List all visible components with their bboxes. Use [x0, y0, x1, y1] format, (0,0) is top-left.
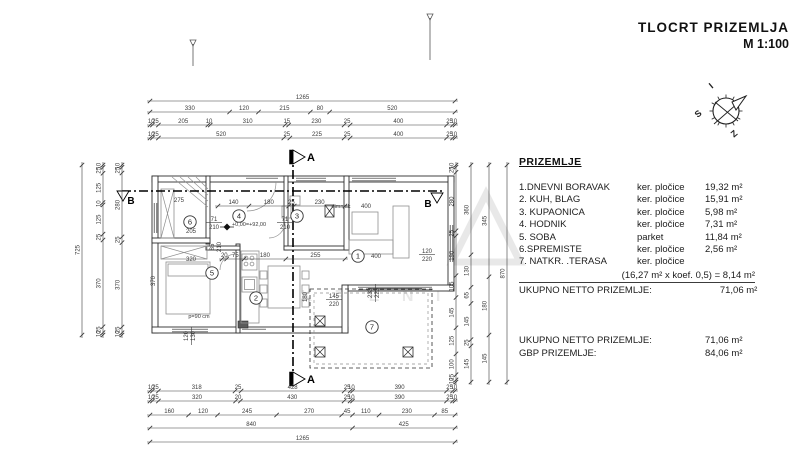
svg-text:270: 270 [304, 409, 315, 415]
room-name: 7. NATKR. .TERASA [519, 256, 637, 268]
svg-text:870: 870 [501, 268, 507, 279]
summary-row: GBP PRIZEMLJE:84,06 m² [519, 348, 755, 360]
legend-row: 4. HODNIKker. pločice7,31 m² [519, 219, 755, 231]
svg-text:125: 125 [97, 182, 103, 193]
svg-text:85: 85 [210, 243, 216, 250]
svg-text:dimnjak: dimnjak [332, 204, 351, 210]
svg-text:80: 80 [317, 106, 324, 112]
svg-text:7: 7 [370, 323, 374, 332]
svg-text:25: 25 [344, 132, 351, 138]
svg-text:125: 125 [97, 214, 103, 225]
room-area: 15,91 m² [705, 194, 755, 206]
svg-text:25: 25 [283, 132, 290, 138]
svg-text:5: 5 [210, 269, 214, 278]
svg-text:280: 280 [450, 196, 456, 207]
svg-text:245: 245 [242, 409, 253, 415]
svg-text:10: 10 [450, 395, 457, 401]
svg-text:140: 140 [228, 200, 239, 206]
svg-text:25: 25 [116, 166, 122, 173]
legend-row: 3. KUPAONICAker. pločice5,98 m² [519, 207, 755, 219]
legend-summary: UKUPNO NETTO PRIZEMLJE:71,06 m²GBP PRIZE… [519, 335, 755, 360]
svg-text:428: 428 [288, 385, 299, 391]
svg-text:125: 125 [450, 335, 456, 346]
room-name: 4. HODNIK [519, 219, 637, 231]
svg-text:1265: 1265 [296, 436, 310, 442]
title-block: TLOCRT PRIZEMLJA M 1:100 [638, 20, 789, 53]
svg-text:145: 145 [465, 358, 471, 369]
room-name: 5. SOBA [519, 232, 637, 244]
svg-text:840: 840 [246, 422, 257, 428]
svg-text:230: 230 [402, 409, 413, 415]
svg-text:360: 360 [465, 204, 471, 215]
svg-text:110: 110 [361, 409, 371, 415]
room-material: ker. pločice [637, 182, 705, 194]
svg-text:210: 210 [217, 241, 223, 252]
svg-text:220: 220 [422, 257, 433, 263]
svg-text:370: 370 [97, 278, 103, 289]
svg-text:10: 10 [348, 385, 355, 391]
svg-text:A: A [307, 152, 315, 164]
svg-text:190: 190 [450, 250, 456, 261]
svg-text:220: 220 [329, 302, 340, 308]
svg-text:25: 25 [450, 166, 456, 173]
svg-text:25: 25 [288, 200, 295, 206]
legend-row: 2. KUH, BLAGker. pločice15,91 m² [519, 194, 755, 206]
room-name: 3. KUPAONICA [519, 207, 637, 219]
svg-text:65: 65 [465, 291, 471, 298]
svg-text:10: 10 [97, 330, 103, 337]
room-material: ker. pločice [637, 256, 705, 268]
svg-text:130: 130 [465, 265, 471, 276]
svg-text:B: B [127, 196, 134, 207]
svg-text:25: 25 [344, 119, 351, 125]
svg-text:120: 120 [184, 330, 190, 341]
svg-text:10: 10 [206, 119, 213, 125]
svg-text:210: 210 [209, 225, 220, 231]
svg-text:400: 400 [393, 119, 404, 125]
legend-row: 5. SOBAparket11,84 m² [519, 232, 755, 244]
svg-text:318: 318 [192, 385, 203, 391]
svg-text:320: 320 [192, 395, 203, 401]
legend-row: 6.SPREMISTEker. pločice2,56 m² [519, 244, 755, 256]
svg-text:15: 15 [283, 119, 290, 125]
svg-text:390: 390 [395, 385, 406, 391]
svg-text:25: 25 [152, 132, 159, 138]
room-area: 11,84 m² [705, 232, 755, 244]
windows-layer [153, 177, 453, 332]
svg-text:25: 25 [97, 233, 103, 240]
room-schedule: PRIZEMLJE 1.DNEVNI BORAVAKker. pločice19… [519, 156, 755, 360]
svg-text:120: 120 [239, 106, 250, 112]
svg-text:400: 400 [371, 254, 382, 260]
svg-text:10: 10 [97, 200, 103, 207]
svg-text:145: 145 [483, 353, 489, 364]
svg-text:330: 330 [185, 106, 196, 112]
svg-text:255: 255 [310, 253, 321, 259]
compass-rose-icon: ISZ [690, 78, 764, 148]
svg-text:6: 6 [188, 218, 192, 227]
svg-text:400: 400 [393, 132, 404, 138]
svg-text:180: 180 [483, 300, 489, 311]
svg-text:25: 25 [235, 385, 242, 391]
svg-text:4: 4 [237, 212, 241, 221]
room-material: ker. pločice [637, 194, 705, 206]
svg-text:10: 10 [348, 395, 355, 401]
svg-text:205: 205 [186, 229, 197, 235]
svg-text:425: 425 [399, 422, 410, 428]
room-name: 1.DNEVNI BORAVAK [519, 182, 637, 194]
svg-text:25: 25 [97, 166, 103, 173]
svg-text:370: 370 [151, 275, 157, 286]
svg-text:120: 120 [198, 409, 209, 415]
svg-text:100: 100 [450, 359, 456, 370]
svg-text:230: 230 [315, 200, 326, 206]
summary-value: 71,06 m² [705, 335, 755, 347]
net-total-value: 71,06 m² [720, 285, 758, 297]
svg-text:220: 220 [375, 287, 381, 298]
svg-text:345: 345 [483, 215, 489, 226]
drawing-sheet: K R E N IAABB126533012021580520102520510… [0, 0, 805, 465]
svg-text:320: 320 [186, 257, 197, 263]
room-material: ker. pločice [637, 219, 705, 231]
svg-text:+0,00=+92,00: +0,00=+92,00 [232, 222, 266, 228]
room-name: 2. KUH, BLAG [519, 194, 637, 206]
svg-text:25: 25 [152, 119, 159, 125]
room-area: 2,56 m² [705, 244, 755, 256]
room-area: 19,32 m² [705, 182, 755, 194]
svg-text:160: 160 [164, 409, 175, 415]
svg-text:280: 280 [116, 199, 122, 210]
svg-text:75: 75 [232, 253, 239, 259]
svg-text:1: 1 [356, 252, 360, 261]
svg-text:210: 210 [280, 225, 291, 231]
svg-text:370: 370 [116, 279, 122, 290]
svg-text:S: S [693, 108, 704, 120]
svg-text:230: 230 [368, 287, 374, 298]
room-area: 7,31 m² [705, 219, 755, 231]
svg-text:10: 10 [450, 385, 457, 391]
svg-text:180: 180 [260, 253, 271, 259]
svg-text:10: 10 [450, 119, 457, 125]
legend-rows: 1.DNEVNI BORAVAKker. pločice19,32 m²2. K… [519, 182, 755, 269]
svg-text:I: I [707, 81, 715, 90]
room-material: ker. pločice [637, 244, 705, 256]
svg-text:520: 520 [387, 106, 398, 112]
svg-text:25: 25 [116, 236, 122, 243]
room-material: ker. pločice [637, 207, 705, 219]
svg-text:85: 85 [441, 409, 448, 415]
svg-text:230: 230 [311, 119, 322, 125]
svg-text:225: 225 [312, 132, 323, 138]
svg-text:71: 71 [211, 217, 218, 223]
svg-text:145: 145 [329, 294, 340, 300]
svg-text:25: 25 [450, 229, 456, 236]
legend-row: 1.DNEVNI BORAVAKker. pločice19,32 m² [519, 182, 755, 194]
svg-text:105: 105 [450, 281, 456, 292]
koef-line: (16,27 m² x koef. 0,5) = 8,14 m² [519, 270, 755, 283]
drawing-title: TLOCRT PRIZEMLJA [638, 20, 789, 37]
svg-text:10: 10 [450, 132, 457, 138]
svg-text:520: 520 [216, 132, 227, 138]
svg-text:25: 25 [465, 339, 471, 346]
svg-text:p=90 cm: p=90 cm [188, 314, 210, 320]
summary-label: UKUPNO NETTO PRIZEMLJE: [519, 335, 705, 347]
svg-text:205: 205 [178, 119, 189, 125]
svg-text:120: 120 [422, 249, 433, 255]
dimension-chains: 1265330120215805201025205103101523025400… [76, 95, 510, 444]
legend-row: 7. NATKR. .TERASAker. pločice [519, 256, 755, 268]
net-total-row: UKUPNO NETTO PRIZEMLJE: 71,06 m² [519, 285, 755, 297]
summary-row: UKUPNO NETTO PRIZEMLJE:71,06 m² [519, 335, 755, 347]
svg-text:71: 71 [282, 217, 289, 223]
svg-text:145: 145 [450, 307, 456, 318]
svg-text:1265: 1265 [296, 95, 310, 101]
svg-text:25: 25 [152, 385, 159, 391]
svg-text:310: 310 [243, 119, 254, 125]
drawing-scale: M 1:100 [638, 37, 789, 53]
svg-text:2: 2 [254, 294, 258, 303]
summary-label: GBP PRIZEMLJE: [519, 348, 705, 360]
svg-text:275: 275 [174, 198, 185, 204]
svg-text:A: A [307, 374, 315, 386]
svg-text:45: 45 [344, 409, 351, 415]
svg-text:180: 180 [303, 291, 309, 302]
svg-text:145: 145 [465, 316, 471, 327]
svg-text:130: 130 [191, 330, 197, 341]
summary-value: 84,06 m² [705, 348, 755, 360]
room-area [705, 256, 755, 268]
room-material: parket [637, 232, 705, 244]
svg-text:Z: Z [729, 128, 740, 140]
svg-text:430: 430 [287, 395, 298, 401]
svg-text:180: 180 [264, 200, 275, 206]
svg-text:390: 390 [395, 395, 406, 401]
room-name: 6.SPREMISTE [519, 244, 637, 256]
net-total-label: UKUPNO NETTO PRIZEMLJE: [519, 285, 652, 297]
legend-heading: PRIZEMLJE [519, 156, 755, 168]
svg-text:400: 400 [361, 204, 372, 210]
svg-text:20: 20 [221, 253, 228, 259]
room-area: 5,98 m² [705, 207, 755, 219]
svg-text:3: 3 [295, 212, 299, 221]
svg-text:725: 725 [76, 244, 82, 255]
svg-text:10: 10 [116, 330, 122, 337]
svg-text:B: B [424, 199, 431, 210]
svg-text:215: 215 [279, 106, 290, 112]
svg-text:25: 25 [152, 395, 159, 401]
svg-text:20: 20 [235, 395, 242, 401]
svg-text:10: 10 [450, 377, 456, 384]
